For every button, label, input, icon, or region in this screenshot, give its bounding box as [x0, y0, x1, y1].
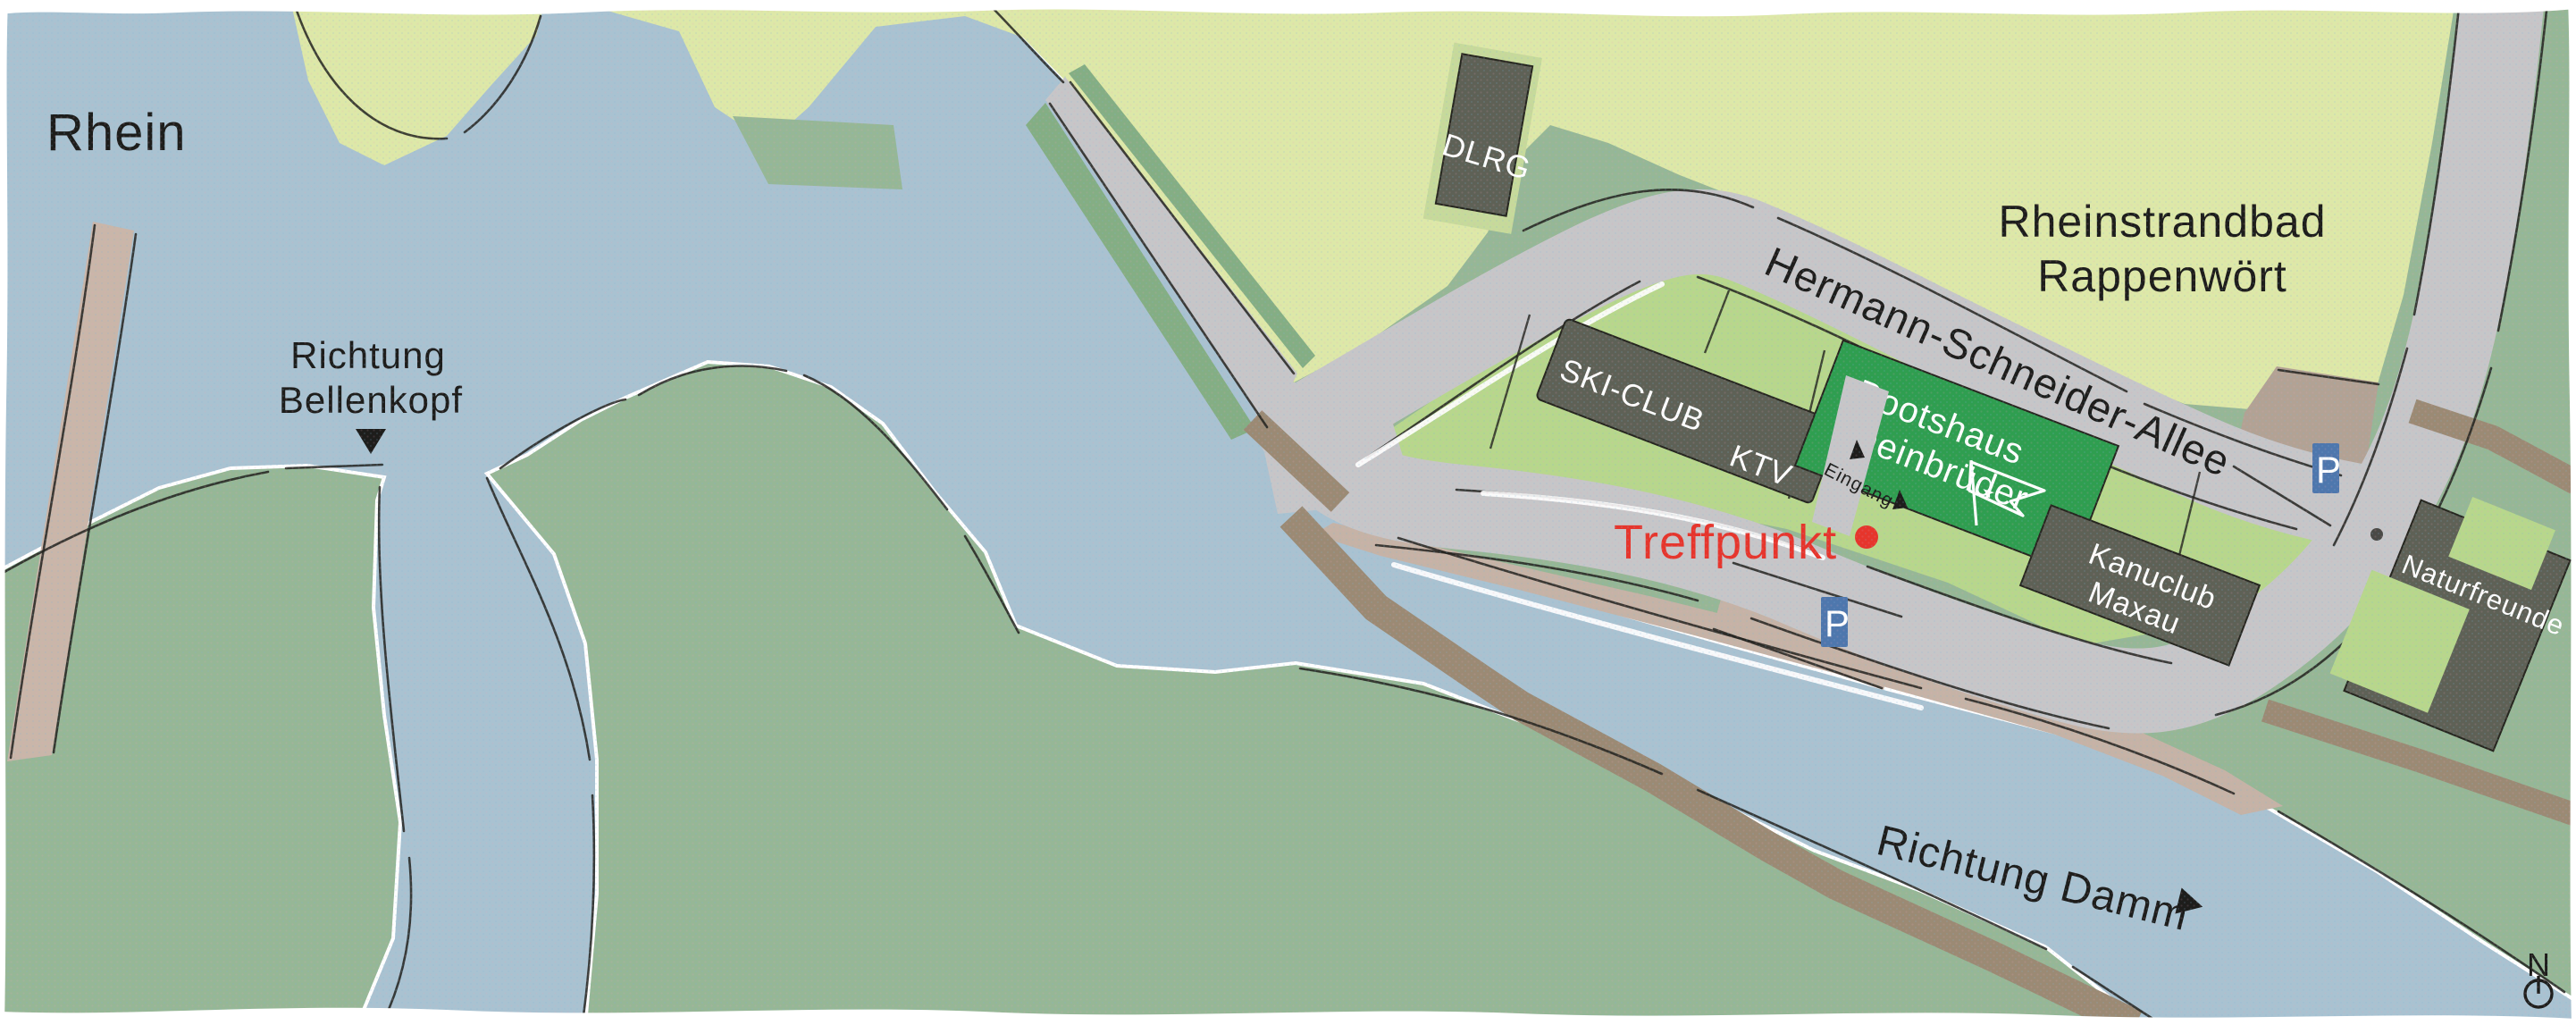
halftone-texture — [0, 0, 2576, 1025]
anfahrt-map: DLRG SKI-CLUB KTV Bootshaus Rheinbrüder … — [0, 0, 2576, 1025]
map-canvas: DLRG SKI-CLUB KTV Bootshaus Rheinbrüder … — [0, 0, 2576, 1025]
